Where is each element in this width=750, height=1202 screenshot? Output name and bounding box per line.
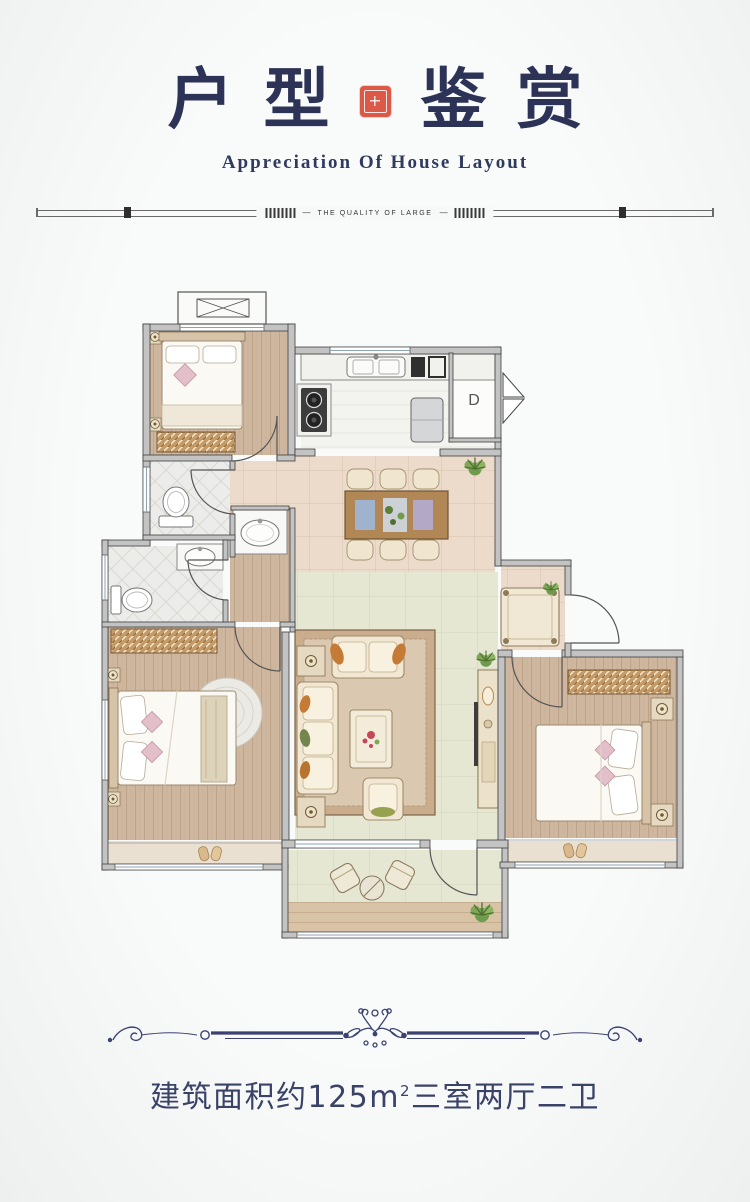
toilet xyxy=(111,586,152,614)
title-char: 户 xyxy=(168,68,234,134)
master-bay xyxy=(108,841,282,864)
dining-table xyxy=(345,469,448,560)
divider-tick xyxy=(36,208,38,217)
door-duct-symbol xyxy=(503,373,524,423)
divider-block xyxy=(124,207,131,218)
subtitle: Appreciation Of House Layout xyxy=(0,152,750,174)
wash-basin xyxy=(233,510,287,554)
poster-page: 户 型 鉴 赏 Appreciation Of House Layout — T… xyxy=(0,0,750,1202)
tv-cabinet xyxy=(474,670,498,808)
divider-barcode-icon xyxy=(455,208,485,218)
flourish-ornament xyxy=(105,1006,645,1064)
divider-block xyxy=(619,207,626,218)
seal-glyph xyxy=(364,90,387,113)
divider-barcode-icon xyxy=(265,208,295,218)
title-char: 鉴 xyxy=(421,68,487,134)
area-text: 建筑面积约125m2三室两厅二卫 xyxy=(0,1072,750,1116)
area-prefix: 建筑面积约125m xyxy=(150,1080,400,1115)
area-suffix: 三室两厅二卫 xyxy=(411,1080,600,1115)
red-seal-icon xyxy=(360,86,391,117)
title-char: 型 xyxy=(264,68,330,134)
living-room-set xyxy=(295,630,435,827)
floorplan-image: D xyxy=(45,272,705,972)
bedroom-right-bay xyxy=(505,841,677,862)
ornamental-divider: — THE QUALITY OF LARGE — xyxy=(36,206,714,222)
duct-label: D xyxy=(468,392,480,409)
hall-junction xyxy=(230,461,295,508)
divider-tick xyxy=(712,208,714,217)
divider-center: — THE QUALITY OF LARGE — xyxy=(256,206,493,220)
door-main-entry xyxy=(571,595,619,643)
title-char: 赏 xyxy=(517,68,583,134)
ac-platform xyxy=(178,292,266,324)
divider-dash: — xyxy=(302,209,310,217)
balcony-deck xyxy=(288,902,502,932)
vanity-sink xyxy=(177,544,223,570)
divider-text: THE QUALITY OF LARGE xyxy=(317,210,432,217)
divider-dash: — xyxy=(440,209,448,217)
area-superscript: 2 xyxy=(400,1082,411,1100)
page-title: 户 型 鉴 赏 xyxy=(0,68,750,134)
flourish-center xyxy=(345,1009,405,1047)
bed-top-left xyxy=(149,331,245,452)
entry-console xyxy=(501,588,559,646)
